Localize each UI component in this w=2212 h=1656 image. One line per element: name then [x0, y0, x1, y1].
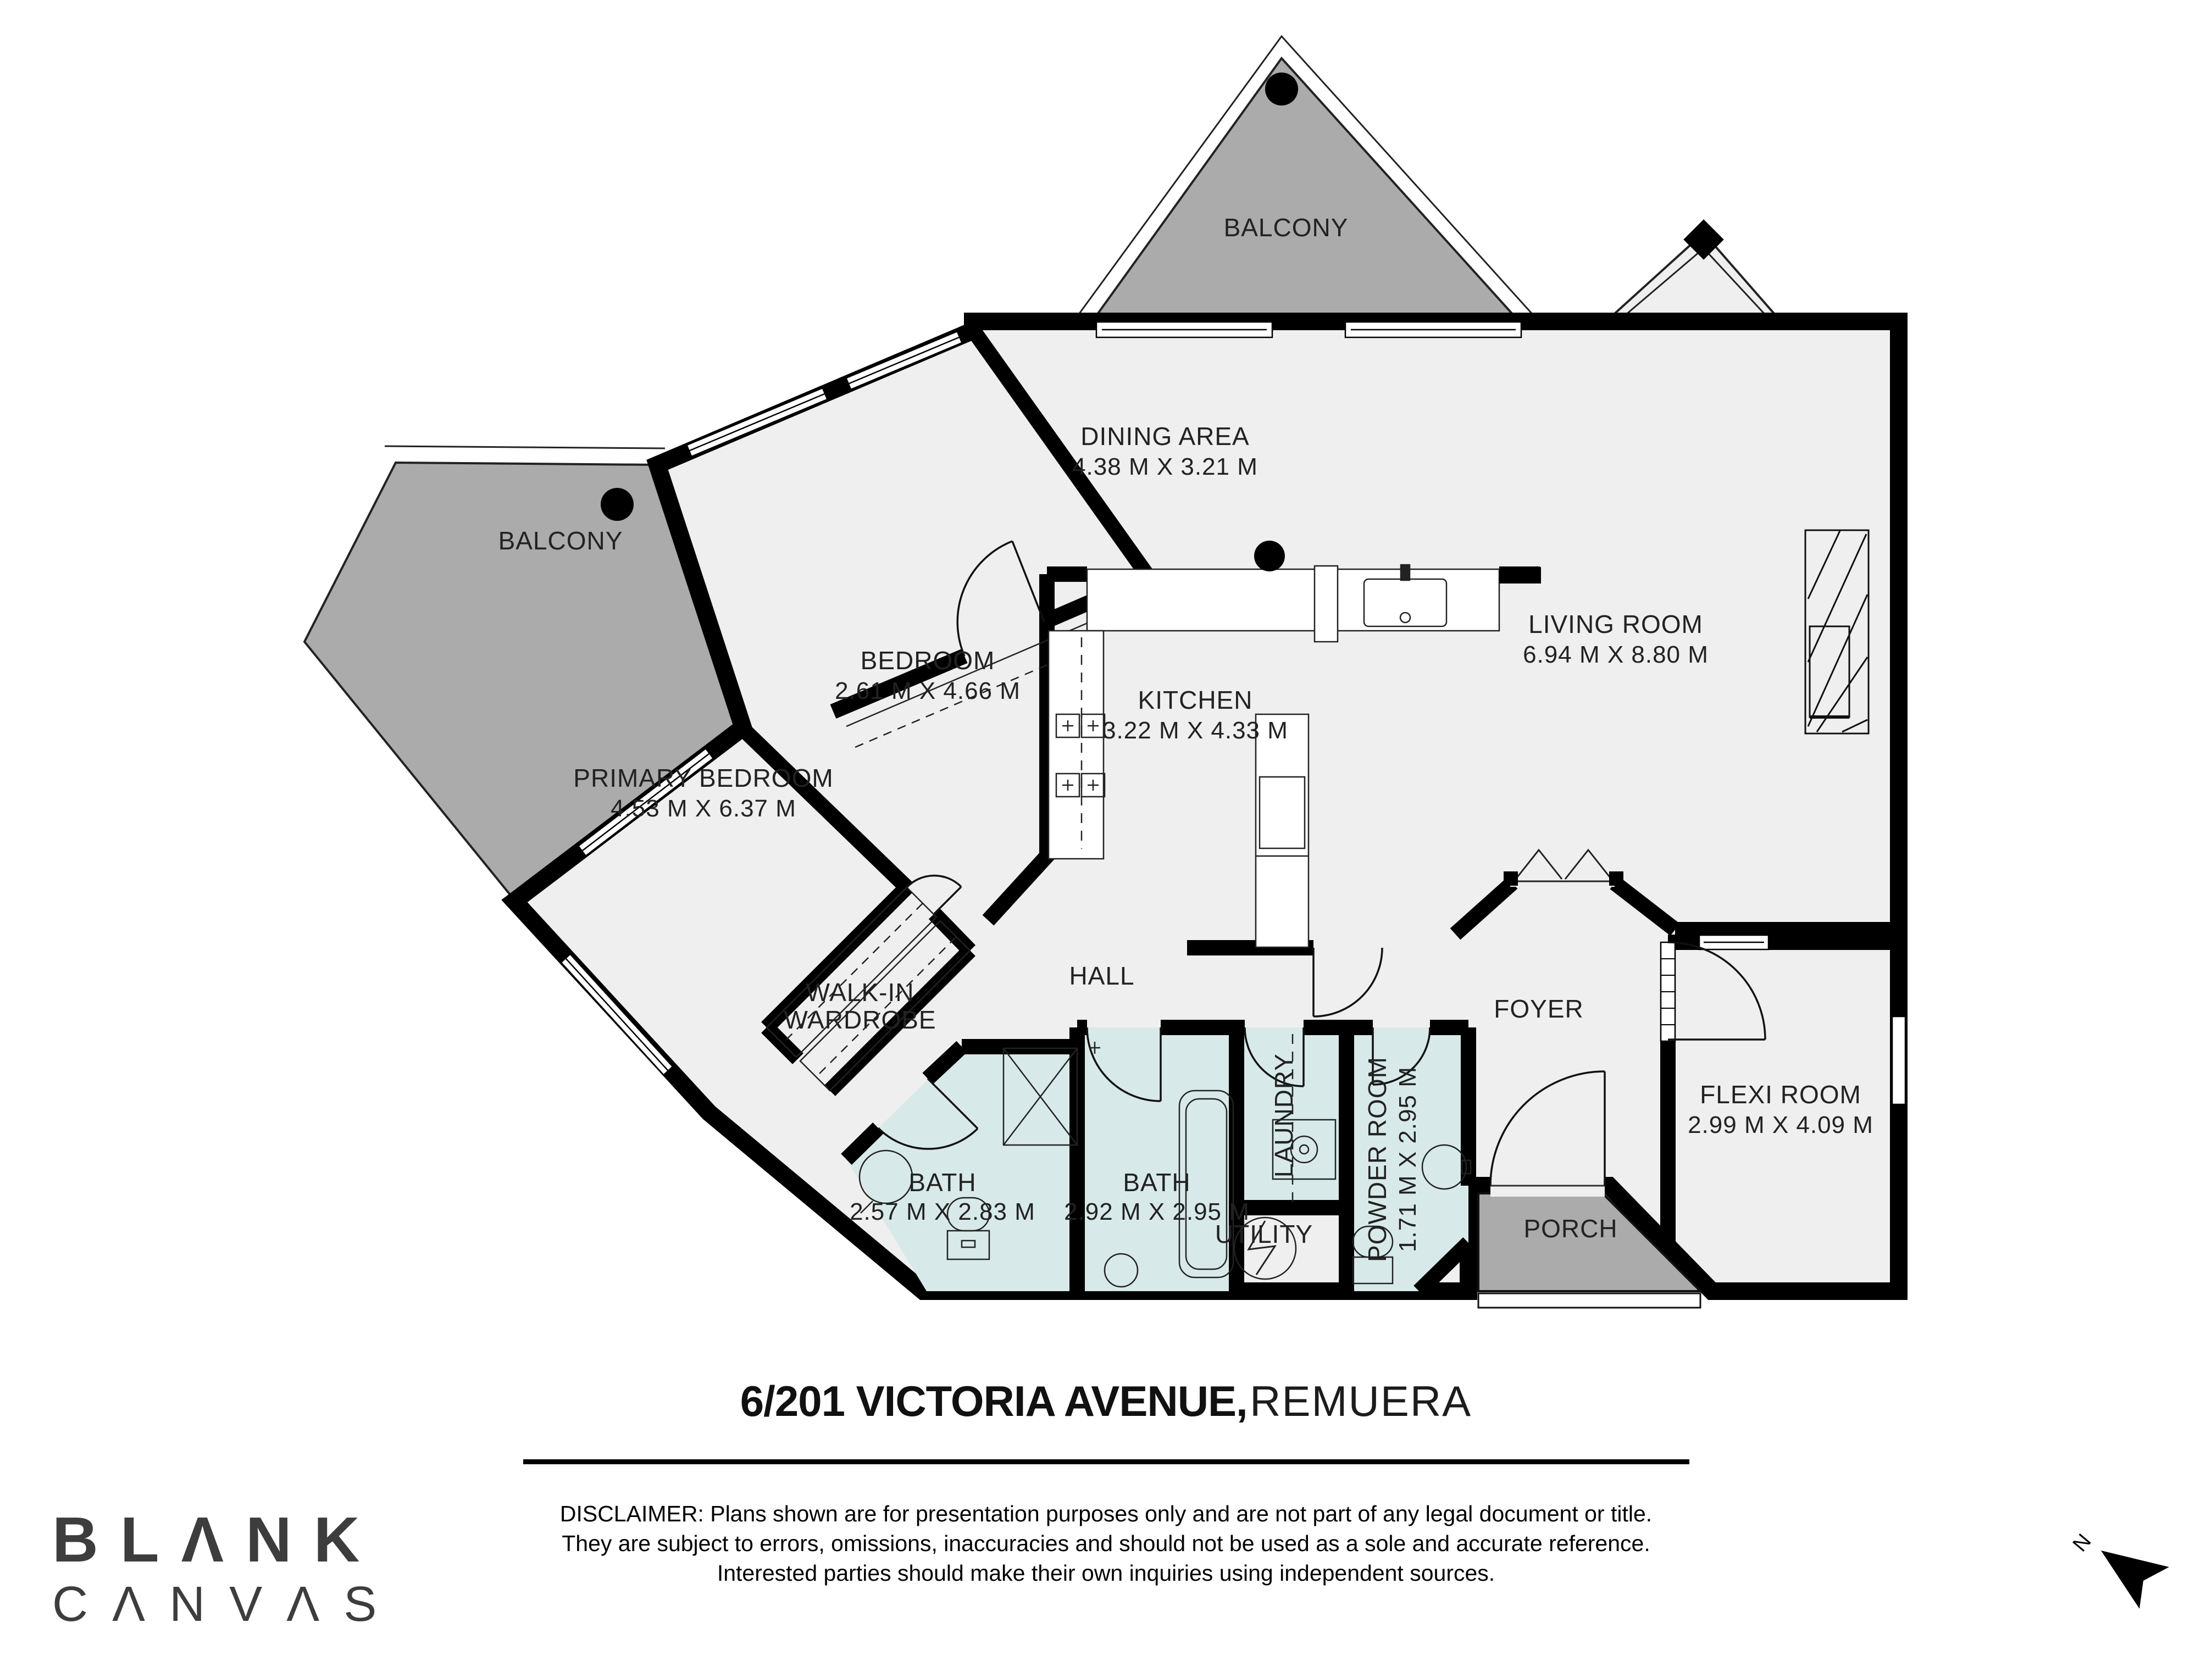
- brand-logo-line2: CΛNVΛS: [52, 1572, 401, 1636]
- room-dims-bath-ensuite: 2.57 M X 2.83 M: [850, 1198, 1035, 1225]
- balcony-column-dot: [601, 488, 634, 521]
- room-label-bedroom: BEDROOM: [861, 646, 995, 675]
- address-bold: 6/201 VICTORIA AVENUE,: [740, 1377, 1248, 1425]
- room-dims-bedroom: 2.61 M X 4.66 M: [835, 677, 1021, 704]
- room-label-dining: DINING AREA: [1080, 422, 1250, 451]
- room-label-living: LIVING ROOM: [1528, 610, 1703, 638]
- room-label-kitchen: KITCHEN: [1138, 686, 1253, 714]
- bath-main-floor: [1077, 1027, 1237, 1291]
- divider-line: [523, 1459, 1689, 1464]
- balcony-column-dot: [1265, 73, 1298, 105]
- room-label-balcony-top: BALCONY: [1224, 213, 1349, 242]
- room-label-foyer: FOYER: [1494, 994, 1583, 1023]
- room-label-powder: POWDER ROOM: [1363, 1057, 1391, 1262]
- room-dims-kitchen: 3.22 M X 4.33 M: [1102, 717, 1288, 744]
- paned-window: [1661, 942, 1675, 1041]
- room-label-hall: HALL: [1069, 962, 1134, 990]
- brand-logo-line1: BLΛNK: [52, 1507, 401, 1572]
- entry-opening: [1490, 1175, 1605, 1197]
- room-dims-living: 6.94 M X 8.80 M: [1523, 641, 1709, 668]
- window-bay-area: [1598, 219, 1787, 329]
- room-label-laundry: LAUNDRY: [1269, 1053, 1298, 1177]
- room-label-bath-ensuite: BATH: [908, 1168, 976, 1197]
- room-label-porch: PORCH: [1523, 1214, 1617, 1243]
- media-wall-symbol: [1805, 530, 1869, 733]
- room-dims-flexi: 2.99 M X 4.09 M: [1688, 1112, 1873, 1138]
- room-label-wardrobe-2: WARDROBE: [784, 1005, 936, 1034]
- kitchen-column-dot: [1254, 541, 1285, 571]
- room-dims-dining: 4.38 M X 3.21 M: [1072, 453, 1258, 480]
- balcony-top-area: [1068, 36, 1545, 329]
- room-dims-powder: 1.71 M X 2.95 M: [1394, 1066, 1421, 1252]
- fridge-symbol: [1256, 714, 1309, 947]
- room-label-primary-bedroom: PRIMARY BEDROOM: [573, 764, 833, 792]
- brand-logo: BLΛNK CΛNVΛS: [52, 1507, 401, 1636]
- address-suburb: REMUERA: [1250, 1377, 1472, 1425]
- page-title: 6/201 VICTORIA AVENUE, REMUERA: [0, 1376, 2212, 1426]
- room-label-wardrobe-1: WALK-IN: [806, 978, 914, 1007]
- room-label-balcony-left: BALCONY: [498, 526, 623, 555]
- kitchen-sink-symbol: [1364, 579, 1446, 626]
- room-label-flexi: FLEXI ROOM: [1700, 1080, 1861, 1109]
- room-dims-primary-bedroom: 4.53 M X 6.37 M: [611, 795, 796, 822]
- room-label-utility: UTILITY: [1215, 1220, 1313, 1248]
- room-label-bath-main: BATH: [1123, 1168, 1190, 1197]
